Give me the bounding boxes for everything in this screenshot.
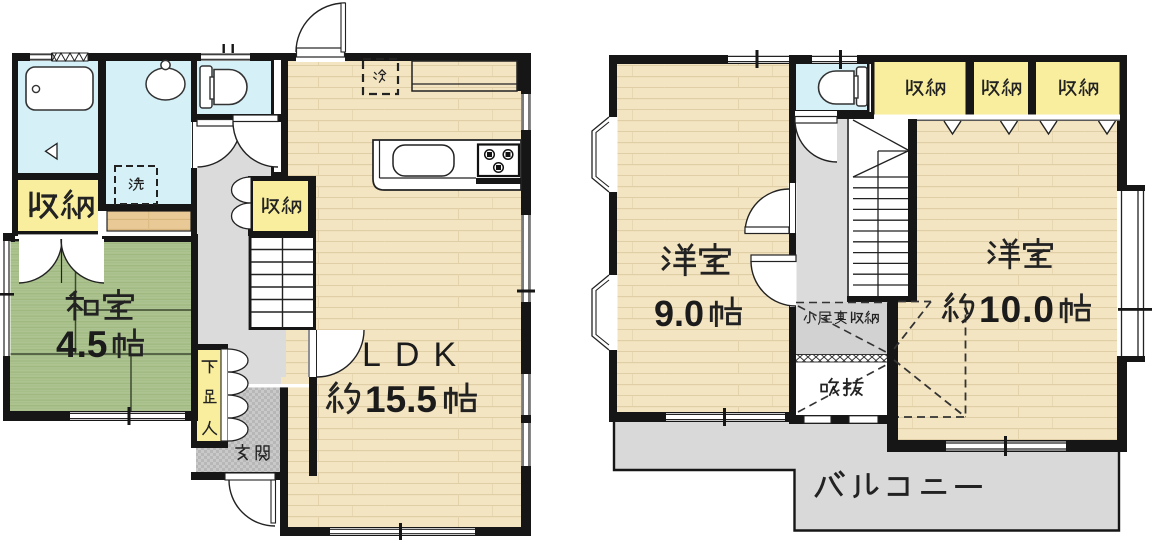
svg-text:4.5: 4.5 <box>56 324 107 365</box>
svg-text:9.0: 9.0 <box>654 293 704 334</box>
svg-text:15.5: 15.5 <box>365 379 437 420</box>
svg-text:10.0: 10.0 <box>979 289 1055 330</box>
svg-text:LDK: LDK <box>362 336 470 374</box>
